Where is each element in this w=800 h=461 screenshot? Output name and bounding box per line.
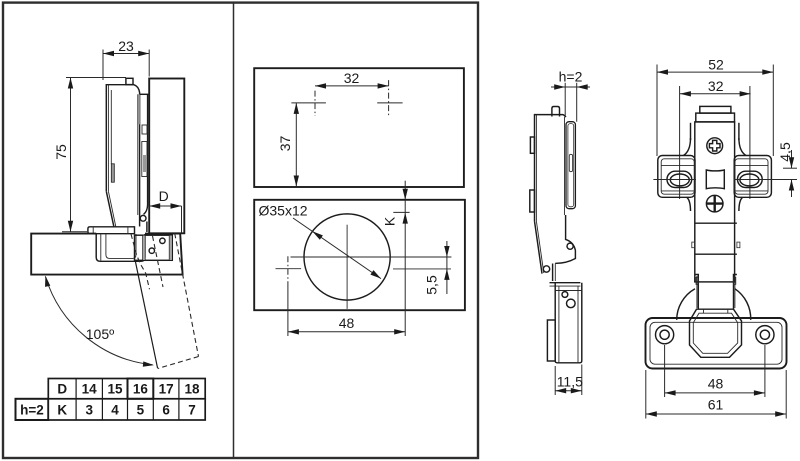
svg-text:17: 17 bbox=[159, 382, 174, 397]
svg-text:5: 5 bbox=[137, 403, 145, 418]
svg-text:6: 6 bbox=[162, 403, 170, 418]
svg-text:4: 4 bbox=[111, 403, 119, 418]
svg-text:23: 23 bbox=[118, 38, 134, 54]
svg-text:48: 48 bbox=[708, 376, 724, 392]
svg-text:K: K bbox=[57, 403, 67, 418]
svg-text:11,5: 11,5 bbox=[557, 374, 583, 390]
svg-text:75: 75 bbox=[53, 144, 69, 160]
svg-text:h=2: h=2 bbox=[559, 69, 583, 85]
svg-text:Ø35x12: Ø35x12 bbox=[259, 203, 308, 219]
svg-text:14: 14 bbox=[82, 382, 98, 397]
svg-text:7: 7 bbox=[188, 403, 196, 418]
svg-text:3: 3 bbox=[85, 403, 93, 418]
svg-text:D: D bbox=[57, 382, 67, 397]
svg-text:16: 16 bbox=[133, 382, 149, 397]
svg-text:18: 18 bbox=[184, 382, 200, 397]
svg-text:4,5: 4,5 bbox=[777, 142, 793, 162]
svg-text:32: 32 bbox=[708, 78, 724, 94]
svg-text:48: 48 bbox=[339, 315, 355, 331]
svg-text:32: 32 bbox=[344, 70, 360, 86]
svg-text:15: 15 bbox=[107, 382, 123, 397]
svg-text:h=2: h=2 bbox=[20, 403, 44, 418]
svg-text:52: 52 bbox=[708, 57, 724, 73]
svg-text:K: K bbox=[382, 216, 398, 226]
svg-text:37: 37 bbox=[277, 136, 293, 152]
svg-text:61: 61 bbox=[708, 397, 724, 413]
svg-text:105º: 105º bbox=[86, 326, 114, 342]
svg-text:5,5: 5,5 bbox=[424, 275, 440, 295]
svg-text:D: D bbox=[159, 188, 169, 204]
